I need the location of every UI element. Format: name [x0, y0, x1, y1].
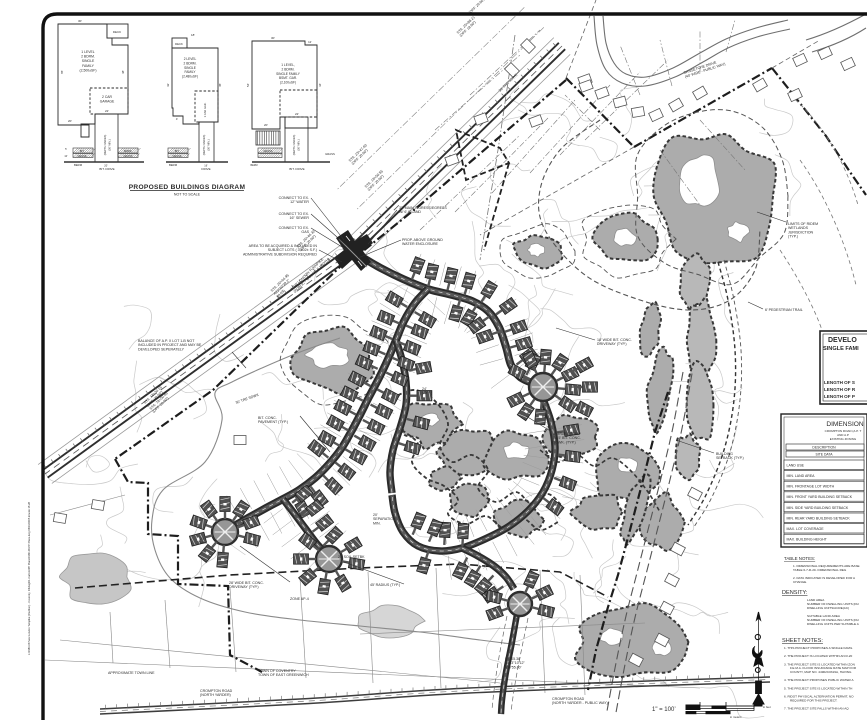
- svg-text:PROP. ABOVE GROUNDWATER ENCLOS: PROP. ABOVE GROUNDWATER ENCLOSURE: [402, 238, 443, 246]
- svg-text:EXISTING ZONING: EXISTING ZONING: [830, 437, 857, 441]
- svg-text:BERM: BERM: [169, 163, 178, 167]
- svg-text:DENSITY:: DENSITY:: [782, 590, 808, 596]
- svg-text:22’: 22’: [295, 112, 299, 116]
- svg-text:LENGTH OF S: LENGTH OF S: [824, 380, 855, 385]
- svg-text:6’ PEDESTRIAN TRAIL: 6’ PEDESTRIAN TRAIL: [765, 308, 803, 312]
- svg-text:GRASS: GRASS: [77, 154, 86, 158]
- svg-text:GRASS: GRASS: [263, 149, 272, 153]
- svg-text:GRASS: GRASS: [123, 154, 132, 158]
- svg-text:SITE DATA: SITE DATA: [815, 453, 833, 457]
- svg-text:16’: 16’: [204, 164, 208, 168]
- svg-text:MIN. FRONT YARD BUILDING SETBA: MIN. FRONT YARD BUILDING SETBACK: [787, 495, 853, 499]
- svg-text:(DEPTH VARIES): (DEPTH VARIES): [292, 135, 296, 156]
- svg-text:18’ WIDE BIT. CONC.DRIVEWAY (: 18’ WIDE BIT. CONC.DRIVEWAY (TYP.): [597, 338, 632, 346]
- svg-text:BIT.: BIT.: [80, 149, 85, 153]
- svg-text:BIT. DRIVE: BIT. DRIVE: [99, 167, 114, 171]
- svg-text:25’ SOIL SETBK: 25’ SOIL SETBK: [338, 555, 365, 559]
- svg-text:30’: 30’: [271, 36, 275, 40]
- svg-text:in feet: in feet: [763, 705, 771, 709]
- svg-text:42’: 42’: [166, 83, 170, 87]
- svg-text:20’: 20’: [104, 164, 108, 168]
- svg-text:SINGLE FAMI: SINGLE FAMI: [823, 346, 859, 352]
- svg-text:44’: 44’: [318, 83, 322, 87]
- svg-text:DIMENSION: DIMENSION: [826, 421, 864, 428]
- svg-text:22’: 22’: [105, 109, 109, 113]
- svg-text:GRASS: GRASS: [325, 152, 335, 156]
- svg-text:MAX. BUILDING HEIGHT: MAX. BUILDING HEIGHT: [787, 538, 828, 542]
- svg-text:1. THIS PROJECT PROPOSES A SI: 1. THIS PROJECT PROPOSES A SINGLE FAMIL: [784, 646, 853, 650]
- svg-text:BERM: BERM: [251, 164, 258, 167]
- svg-text:3. THE PROJECT SITE IS LOCATE: 3. THE PROJECT SITE IS LOCATED WITHIN ZO…: [784, 662, 857, 674]
- svg-text:45’ RADIUS (TYP.): 45’ RADIUS (TYP.): [370, 583, 400, 587]
- svg-text:65’: 65’: [60, 70, 64, 74]
- svg-text:45’: 45’: [218, 83, 222, 87]
- svg-text:ZONE AP-4: ZONE AP-4: [290, 597, 309, 601]
- svg-text:4. THE PROJECT PROPOSES PUBLI: 4. THE PROJECT PROPOSES PUBLIC WATER A: [784, 678, 854, 682]
- svg-text:MIN. FRONTAGE LOT WIDTH: MIN. FRONTAGE LOT WIDTH: [787, 485, 835, 489]
- svg-text:28’ WIDE BIT. CONC.DRIVEWAY (T: 28’ WIDE BIT. CONC.DRIVEWAY (TYP.): [229, 581, 264, 589]
- svg-text:4’: 4’: [176, 117, 179, 121]
- svg-text:DECK: DECK: [175, 42, 183, 46]
- svg-text:(50’ MIN.): (50’ MIN.): [297, 139, 301, 150]
- svg-text:5. THE PROJECT SITE IS LOCATE: 5. THE PROJECT SITE IS LOCATED WITHIN TH: [784, 686, 852, 690]
- svg-text:1" = 100’: 1" = 100’: [652, 707, 676, 713]
- svg-text:TABLE NOTES:: TABLE NOTES:: [784, 556, 815, 561]
- svg-text:(50’ MIN.): (50’ MIN.): [207, 139, 211, 150]
- svg-text:(DEPTH VARIES): (DEPTH VARIES): [202, 135, 206, 156]
- svg-text:2 LEVEL2 BDRM.SINGLEFAMILY(2: 2 LEVEL2 BDRM.SINGLEFAMILY(2,480±SF): [182, 57, 198, 79]
- svg-text:DESCRIPTION: DESCRIPTION: [812, 446, 836, 450]
- svg-text:PROPOSED BUILDINGS DIAGRAM: PROPOSED BUILDINGS DIAGRAM: [129, 184, 246, 191]
- svg-text:BIT.: BIT.: [175, 149, 180, 153]
- svg-text:APPROXIMATE TOWN LINE: APPROXIMATE TOWN LINE: [108, 671, 155, 675]
- svg-text:7. THE PROJECT SITE FALLS WIT: 7. THE PROJECT SITE FALLS WITHIN AN AQ: [784, 707, 849, 711]
- svg-text:BIT. DRIVE: BIT. DRIVE: [289, 167, 304, 171]
- svg-text:MIN. SIDE YARD BUILDING SETBAC: MIN. SIDE YARD BUILDING SETBACK: [787, 506, 849, 510]
- svg-text:2. THE PROJECT IS LOCATED WIT: 2. THE PROJECT IS LOCATED WITHIN AN R-20: [784, 654, 853, 658]
- svg-text:(DEPTH VARIES): (DEPTH VARIES): [103, 135, 107, 156]
- svg-text:30’: 30’: [78, 19, 82, 23]
- svg-text:LENGTH OF P: LENGTH OF P: [824, 394, 855, 399]
- svg-text:MAX. LOT COVERAGE: MAX. LOT COVERAGE: [787, 527, 825, 531]
- svg-text:BERM: BERM: [74, 163, 83, 167]
- svg-text:54’: 54’: [246, 83, 250, 87]
- svg-text:1 LEVEL2 BDRM.SINGLEFAMILY(2: 1 LEVEL2 BDRM.SINGLEFAMILY(2,500±SF): [80, 50, 97, 72]
- svg-text:10’: 10’: [64, 155, 68, 158]
- svg-text:20’: 20’: [68, 119, 72, 123]
- svg-text:L:\1980-08 New London Turnpike: L:\1980-08 New London Turnpike (Pavilion…: [27, 501, 31, 655]
- svg-text:SHEET NOTES:: SHEET NOTES:: [782, 638, 823, 644]
- svg-text:in meters: in meters: [730, 715, 742, 719]
- svg-text:12’: 12’: [308, 40, 312, 44]
- svg-text:MIN. LAND AREA: MIN. LAND AREA: [787, 474, 816, 478]
- svg-text:48’: 48’: [121, 70, 125, 74]
- svg-text:GRASS: GRASS: [172, 154, 181, 158]
- svg-text:SDWK.: SDWK.: [124, 149, 133, 153]
- svg-text:DRIVE: DRIVE: [201, 167, 210, 171]
- svg-text:CROMPTON ROAD(NORTH YARDER): CROMPTON ROAD(NORTH YARDER): [200, 689, 233, 697]
- svg-text:18’: 18’: [191, 33, 195, 37]
- svg-text:1 CAR GAR.: 1 CAR GAR.: [203, 102, 207, 117]
- svg-text:(50’ MIN.): (50’ MIN.): [108, 139, 112, 150]
- svg-text:MIN. REAR YARD BUILDING SETBAC: MIN. REAR YARD BUILDING SETBACK: [787, 516, 851, 520]
- svg-text:LAND USE: LAND USE: [787, 463, 805, 467]
- svg-text:NOT TO SCALE: NOT TO SCALE: [174, 193, 201, 197]
- svg-text:DEVELO: DEVELO: [828, 337, 857, 344]
- svg-text:DECK: DECK: [113, 30, 121, 34]
- svg-text:20’: 20’: [264, 123, 268, 127]
- svg-text:LENGTH OF R: LENGTH OF R: [824, 387, 856, 392]
